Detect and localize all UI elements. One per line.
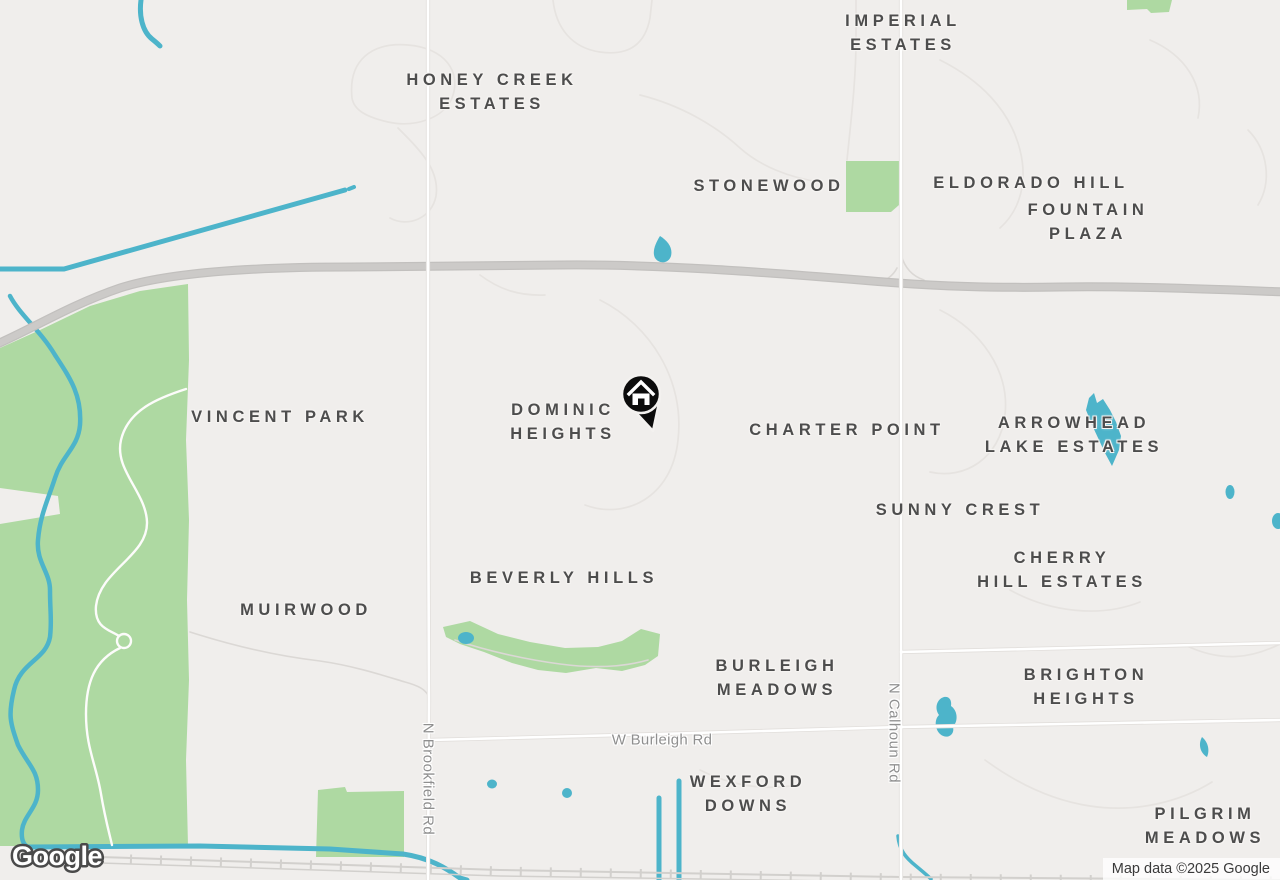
home-marker[interactable]	[0, 0, 1280, 880]
google-logo-text: Google	[12, 841, 102, 871]
google-logo[interactable]: Google	[8, 838, 138, 874]
map-attribution: Map data ©2025 Google	[1103, 858, 1280, 880]
home-marker-pin[interactable]	[622, 375, 660, 431]
map-canvas[interactable]: IMPERIAL ESTATES HONEY CREEK ESTATES STO…	[0, 0, 1280, 880]
